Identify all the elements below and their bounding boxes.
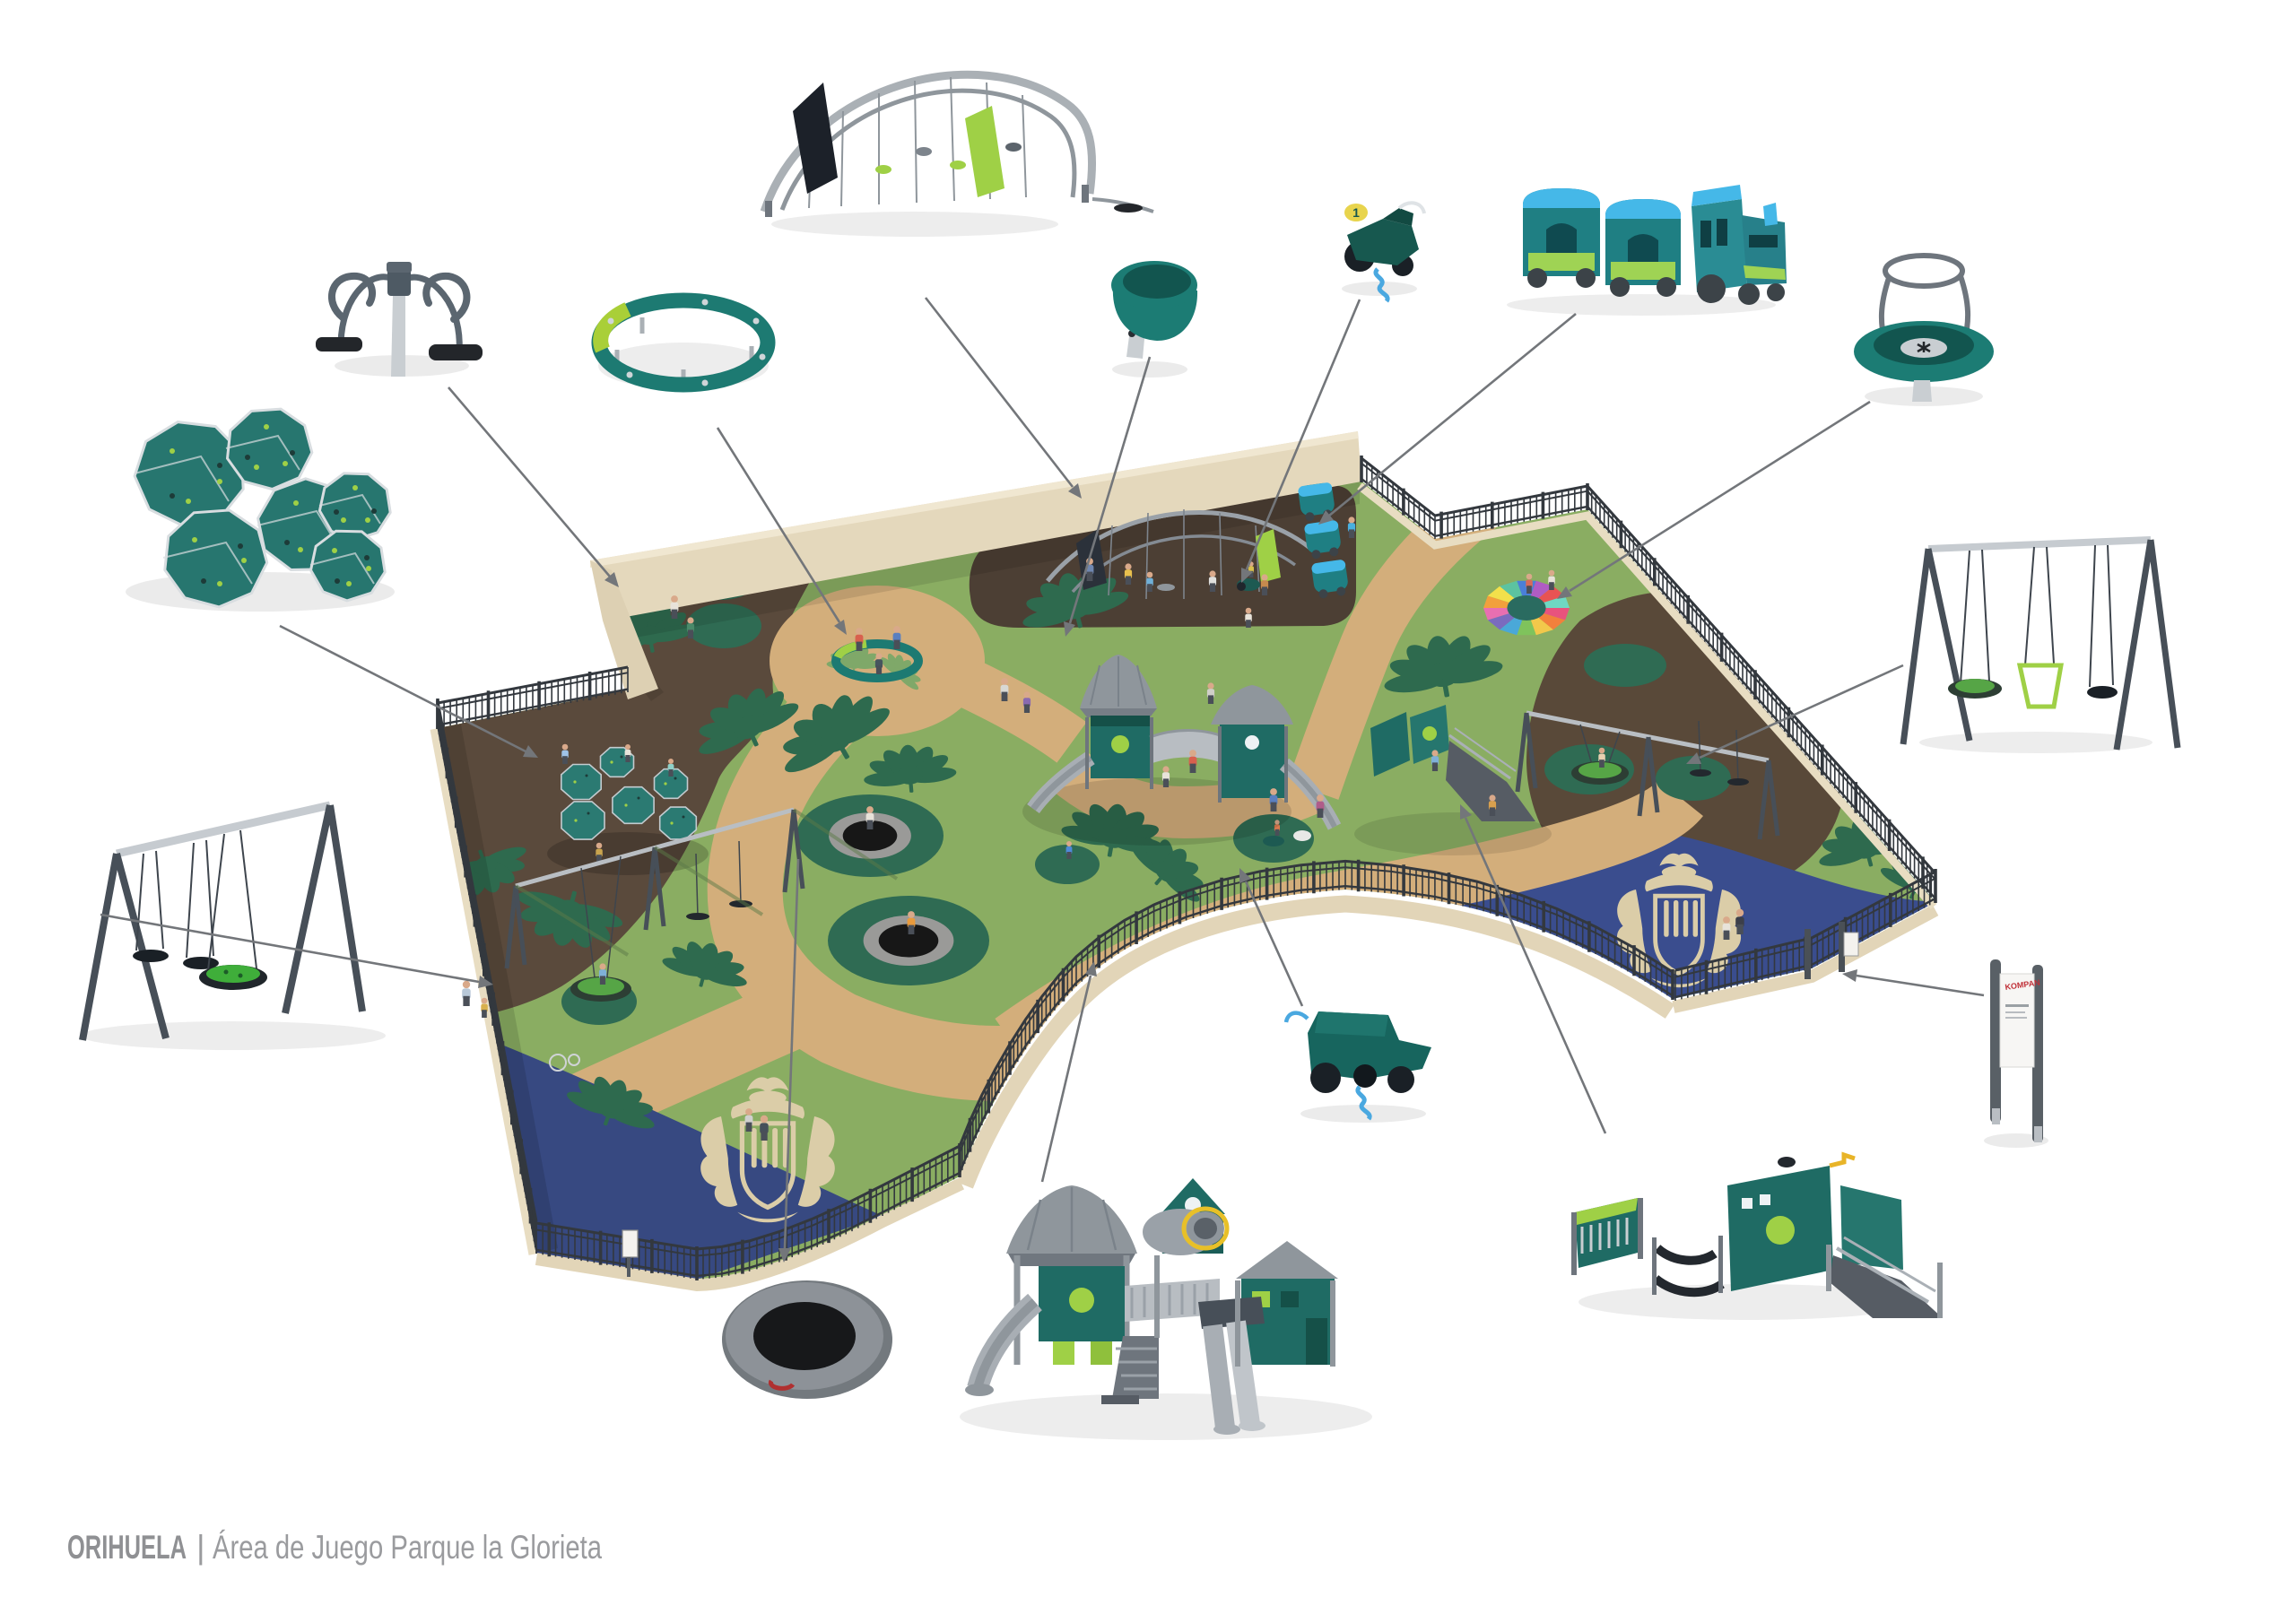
svg-text:ORIHUELA: ORIHUELA xyxy=(67,1529,187,1566)
svg-text:1: 1 xyxy=(1352,205,1360,220)
svg-text:|: | xyxy=(196,1529,205,1566)
svg-text:Área de Juego Parque la Glorie: Área de Juego Parque la Glorieta xyxy=(213,1529,602,1566)
